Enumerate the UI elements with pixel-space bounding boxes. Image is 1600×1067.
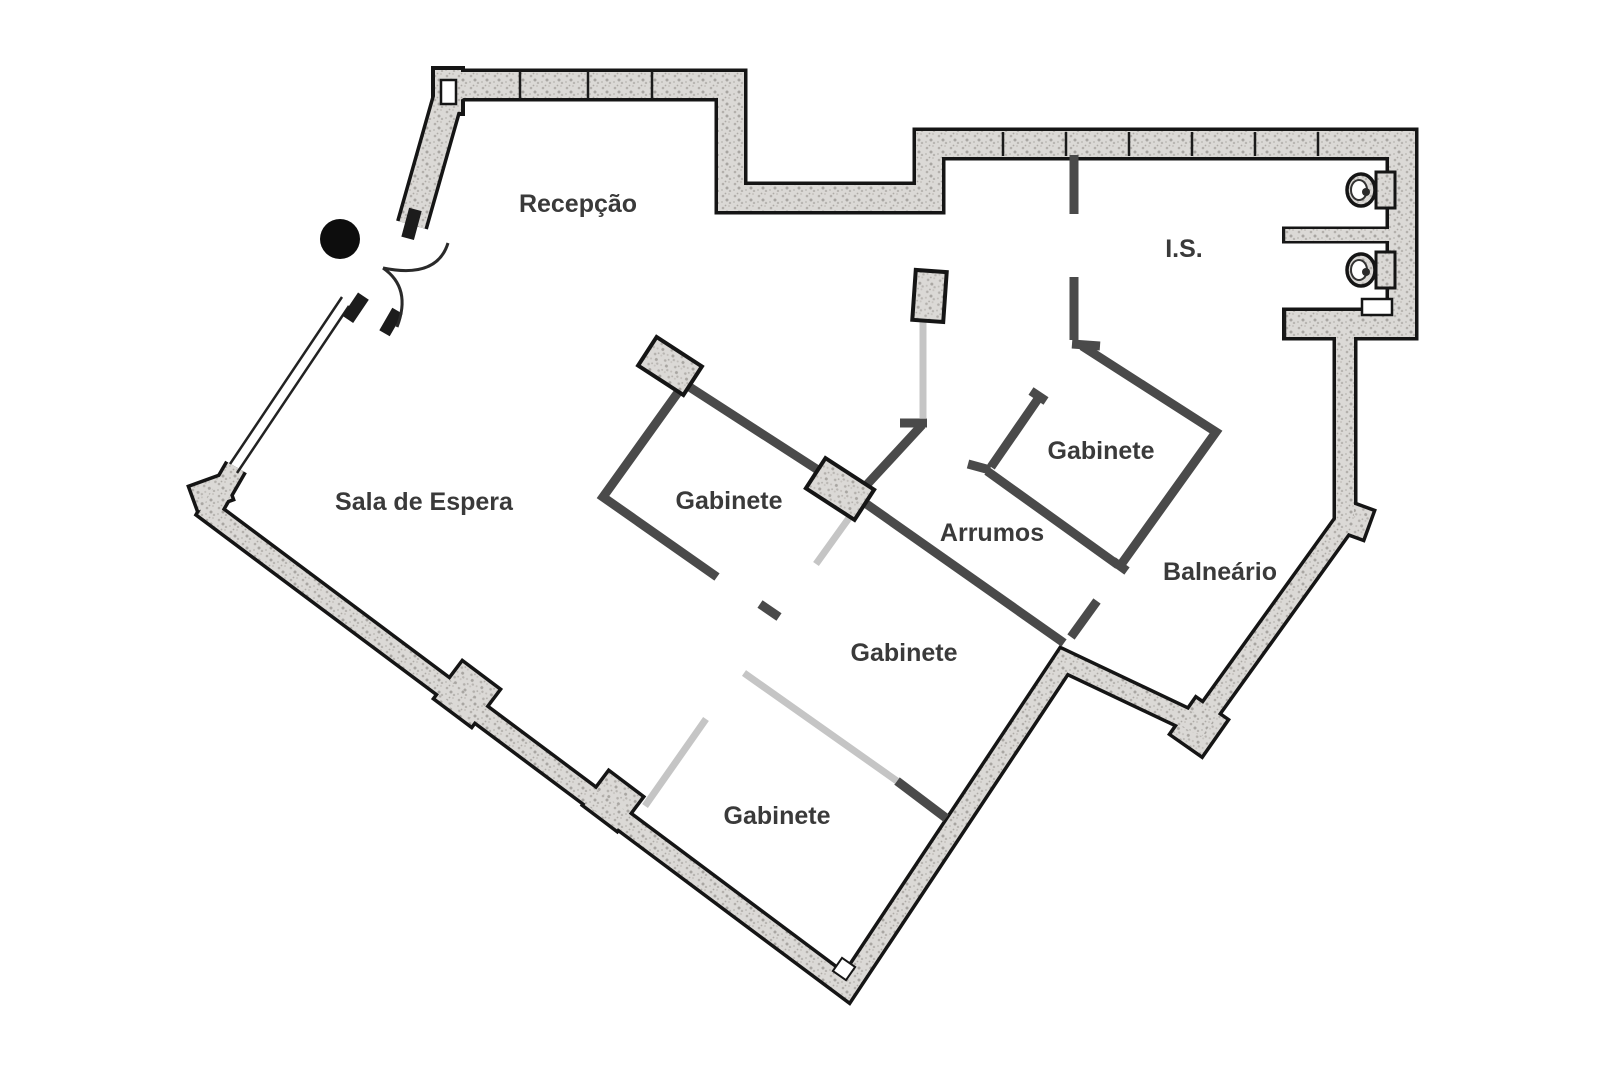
door-leaf-gabinete-bottom	[645, 719, 706, 806]
partition-stub-arrumos	[968, 464, 990, 470]
door-leaf-gabinete-middle	[744, 673, 897, 781]
room-label-arrumos: Arrumos	[940, 519, 1044, 547]
room-label-gabinete-top: Gabinete	[676, 487, 783, 515]
entrance-door	[320, 208, 448, 337]
floor-plan-page: Recepção I.S. Sala de Espera Gabinete Ga…	[0, 0, 1600, 1067]
door-swing-arc-upper	[383, 243, 448, 271]
toilet-icon	[1347, 252, 1395, 288]
toilet-icon	[1347, 172, 1395, 208]
partition-gabinete-top-west	[603, 391, 717, 577]
door-leaves	[645, 322, 923, 806]
window-left	[230, 297, 349, 473]
entrance-pivot-dot	[320, 219, 360, 259]
column-icon	[912, 270, 946, 322]
columns	[638, 270, 947, 520]
partition-gabinete-right-south	[987, 471, 1118, 565]
partition-corridor-southwest	[861, 425, 922, 491]
partition-stub-center	[760, 604, 779, 617]
room-labels: Recepção I.S. Sala de Espera Gabinete Ga…	[335, 190, 1277, 830]
room-label-is: I.S.	[1165, 235, 1203, 263]
room-label-sala-de-espera: Sala de Espera	[335, 488, 514, 516]
door-leaf-center	[816, 518, 849, 564]
floor-plan-canvas: Recepção I.S. Sala de Espera Gabinete Ga…	[0, 0, 1600, 1067]
partition-gabinete-top-north	[688, 386, 818, 470]
exterior-walls	[188, 68, 1410, 988]
partition-gabinete-right-west	[991, 396, 1040, 467]
room-label-balneario: Balneário	[1163, 558, 1277, 586]
window-jamb	[342, 292, 368, 322]
room-label-gabinete-middle: Gabinete	[851, 639, 958, 667]
wc-shelf	[1362, 299, 1392, 315]
room-label-recepcao: Recepção	[519, 190, 637, 218]
room-label-gabinete-right: Gabinete	[1048, 437, 1155, 465]
partition-balneario-west	[1071, 601, 1097, 637]
partition-gabinete-bottom-east	[897, 781, 946, 818]
room-label-gabinete-bottom: Gabinete	[724, 802, 831, 830]
pilaster-notch	[441, 80, 456, 104]
